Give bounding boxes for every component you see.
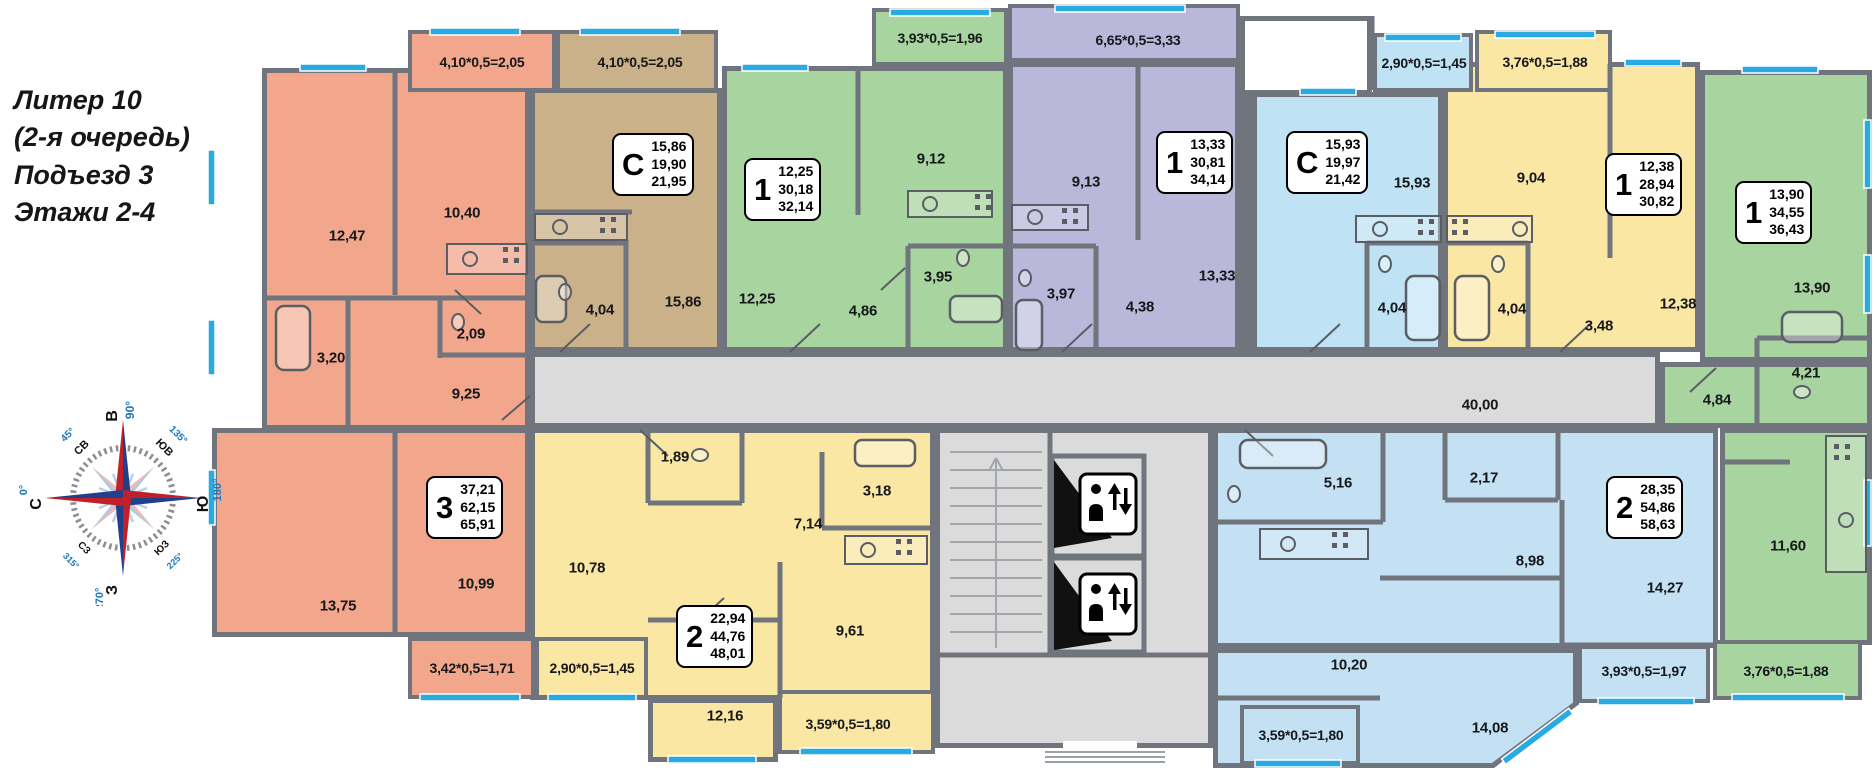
apartment-area: 19,90 <box>651 156 686 174</box>
apartment-area: 44,76 <box>710 628 745 646</box>
room-area-label: 4,04 <box>586 303 614 318</box>
balcony-area-label: 3,59*0,5=1,80 <box>1259 728 1344 742</box>
balcony-area-label: 3,42*0,5=1,71 <box>430 661 515 675</box>
room-area-label: 15,93 <box>1394 176 1431 191</box>
room-area-label: 13,90 <box>1794 281 1831 296</box>
compass-deg-nw: 315° <box>61 551 82 572</box>
room-area-label: 7,14 <box>794 517 822 532</box>
compass-deg-ne: 45° <box>59 426 77 444</box>
apartment-card: 1 13,33 30,81 34,14 <box>1156 131 1233 194</box>
room-area-label: 9,13 <box>1072 175 1100 190</box>
compass-deg-south: 180° <box>212 479 224 502</box>
room-area-label: 2,09 <box>457 327 485 342</box>
apartment-card: 1 12,25 30,18 32,14 <box>744 158 821 221</box>
room-area-label: 10,78 <box>569 561 606 576</box>
compass-label-ne: СВ <box>72 438 92 458</box>
apartment-type: 1 <box>1166 147 1183 178</box>
balcony-area-label: 4,10*0,5=2,05 <box>598 55 683 69</box>
compass-label-nw: СЗ <box>75 540 92 557</box>
room-area-label: 9,25 <box>452 387 480 402</box>
balcony-area-label: 3,59*0,5=1,80 <box>806 717 891 731</box>
region-stairs-elevators <box>935 428 1213 748</box>
apartment-type: 3 <box>436 492 453 523</box>
room-area-label: 14,27 <box>1647 581 1684 596</box>
room-area-label: 13,75 <box>320 599 357 614</box>
room-area-label: 4,38 <box>1126 300 1154 315</box>
title-line: Этажи 2-4 <box>14 194 190 231</box>
plan-title: Литер 10 (2-я очередь) Подъезд 3 Этажи 2… <box>14 82 190 231</box>
balcony-area-label: 3,93*0,5=1,97 <box>1602 664 1687 678</box>
total-area: 65,91 <box>460 516 495 534</box>
apartment-type: С <box>1296 147 1318 178</box>
room-area-label: 12,47 <box>329 229 366 244</box>
room-area-label: 8,98 <box>1516 554 1544 569</box>
room-area-label: 1,89 <box>661 450 689 465</box>
region-apt-1-room-purple <box>1008 62 1240 352</box>
compass-label-east: В <box>104 410 121 422</box>
total-area: 30,82 <box>1639 193 1674 211</box>
room-area-label: 14,08 <box>1472 721 1509 736</box>
apartment-type: 2 <box>1616 492 1633 523</box>
room-area-label: 11,60 <box>1770 539 1806 554</box>
balcony-area-label: 3,93*0,5=1,96 <box>898 31 983 45</box>
apartment-card: С 15,86 19,90 21,95 <box>612 133 694 196</box>
floor-plan: 12,47 10,40 2,09 3,20 9,25 10,99 13,75 1… <box>0 0 1876 768</box>
compass-deg-se: 135° <box>167 424 189 446</box>
region-apt-1-room-green-east <box>1660 362 1872 428</box>
apartment-area: 19,97 <box>1325 154 1360 172</box>
balcony-area-label: 2,90*0,5=1,45 <box>550 661 635 675</box>
room-area-label: 15,86 <box>665 295 702 310</box>
living-area: 37,21 <box>460 481 495 499</box>
title-line: Подъезд 3 <box>14 157 190 194</box>
floor-plan-page: Литер 10 (2-я очередь) Подъезд 3 Этажи 2… <box>0 0 1876 768</box>
compass-label-sw: ЮЗ <box>152 538 172 558</box>
room-area-label: 10,20 <box>1331 658 1368 673</box>
room-area-label: 4,04 <box>1498 302 1526 317</box>
total-area: 32,14 <box>778 198 813 216</box>
room-area-label: 12,16 <box>707 709 744 724</box>
apartment-area: 54,86 <box>1640 499 1675 517</box>
apartment-area: 30,81 <box>1190 154 1225 172</box>
apartment-card: С 15,93 19,97 21,42 <box>1286 131 1368 194</box>
room-area-label: 4,04 <box>1378 301 1406 316</box>
apartment-card: 3 37,21 62,15 65,91 <box>426 476 503 539</box>
apartment-area: 62,15 <box>460 499 495 517</box>
living-area: 22,94 <box>710 610 745 628</box>
compass-label-north: С <box>28 498 45 510</box>
room-area-label: 12,38 <box>1660 297 1697 312</box>
region-apt-1-room-green-east <box>1720 428 1872 645</box>
room-area-label: 3,18 <box>863 484 891 499</box>
room-area-label: 3,95 <box>924 270 952 285</box>
balcony-area-label: 2,90*0,5=1,45 <box>1382 56 1467 70</box>
apartment-card: 2 22,94 44,76 48,01 <box>676 605 753 668</box>
compass-rose-icon: В 90° Ю 180° З 270° С 0° СВ 45° ЮВ 135° … <box>18 386 228 606</box>
apartment-card: 1 13,90 34,55 36,43 <box>1735 181 1812 244</box>
compass-label-se: ЮВ <box>153 437 175 459</box>
apartment-type: С <box>622 149 644 180</box>
apartment-card: 1 12,38 28,94 30,82 <box>1605 153 1682 216</box>
apartment-area: 28,94 <box>1639 176 1674 194</box>
corridor-area-label: 40,00 <box>1462 398 1499 413</box>
compass-deg-east: 90° <box>123 401 137 419</box>
title-line: Литер 10 <box>14 82 190 119</box>
apartment-type: 1 <box>1615 169 1632 200</box>
region-corridor <box>530 352 1660 428</box>
room-area-label: 5,16 <box>1324 476 1352 491</box>
room-area-label: 3,97 <box>1047 287 1075 302</box>
room-area-label: 9,61 <box>836 624 864 639</box>
balcony-area-label: 3,76*0,5=1,88 <box>1503 55 1588 69</box>
room-area-label: 9,12 <box>917 152 945 167</box>
total-area: 34,14 <box>1190 171 1225 189</box>
region-apt-studio-west <box>530 88 722 352</box>
living-area: 13,33 <box>1190 136 1225 154</box>
apartment-type: 1 <box>1745 197 1762 228</box>
living-area: 28,35 <box>1640 481 1675 499</box>
room-area-label: 2,17 <box>1470 471 1498 486</box>
compass-label-south: Ю <box>195 496 212 513</box>
room-area-label: 4,21 <box>1792 366 1820 381</box>
living-area: 12,38 <box>1639 158 1674 176</box>
room-area-label: 4,84 <box>1703 393 1731 408</box>
total-area: 58,63 <box>1640 516 1675 534</box>
region-apt-3-room <box>262 68 530 430</box>
living-area: 15,86 <box>651 138 686 156</box>
total-area: 21,42 <box>1325 171 1360 189</box>
apartment-area: 34,55 <box>1769 204 1804 222</box>
living-area: 12,25 <box>778 163 813 181</box>
room-area-label: 13,33 <box>1199 269 1236 284</box>
room-area-label: 9,04 <box>1517 171 1545 186</box>
balcony-area-label: 6,65*0,5=3,33 <box>1096 33 1181 47</box>
total-area: 21,95 <box>651 173 686 191</box>
room-area-label: 10,99 <box>458 577 495 592</box>
balcony-area-label: 3,76*0,5=1,88 <box>1744 664 1829 678</box>
compass-deg-sw: 225° <box>165 550 186 571</box>
balcony-area-label: 4,10*0,5=2,05 <box>440 55 525 69</box>
title-line: (2-я очередь) <box>14 119 190 156</box>
room-area-label: 12,25 <box>739 292 776 307</box>
compass-deg-north: 0° <box>18 485 30 496</box>
compass-deg-west: 270° <box>94 588 106 606</box>
living-area: 13,90 <box>1769 186 1804 204</box>
apartment-area: 30,18 <box>778 181 813 199</box>
duct-wall <box>1240 92 1252 352</box>
apartment-type: 2 <box>686 621 703 652</box>
building-notch <box>1240 16 1372 95</box>
apartment-card: 2 28,35 54,86 58,63 <box>1606 476 1683 539</box>
living-area: 15,93 <box>1325 136 1360 154</box>
total-area: 48,01 <box>710 645 745 663</box>
room-area-label: 3,48 <box>1585 319 1613 334</box>
compass-label-west: З <box>104 585 121 595</box>
room-area-label: 4,86 <box>849 304 877 319</box>
room-area-label: 3,20 <box>317 351 345 366</box>
room-area-label: 10,40 <box>444 206 481 221</box>
total-area: 36,43 <box>1769 221 1804 239</box>
apartment-type: 1 <box>754 174 771 205</box>
